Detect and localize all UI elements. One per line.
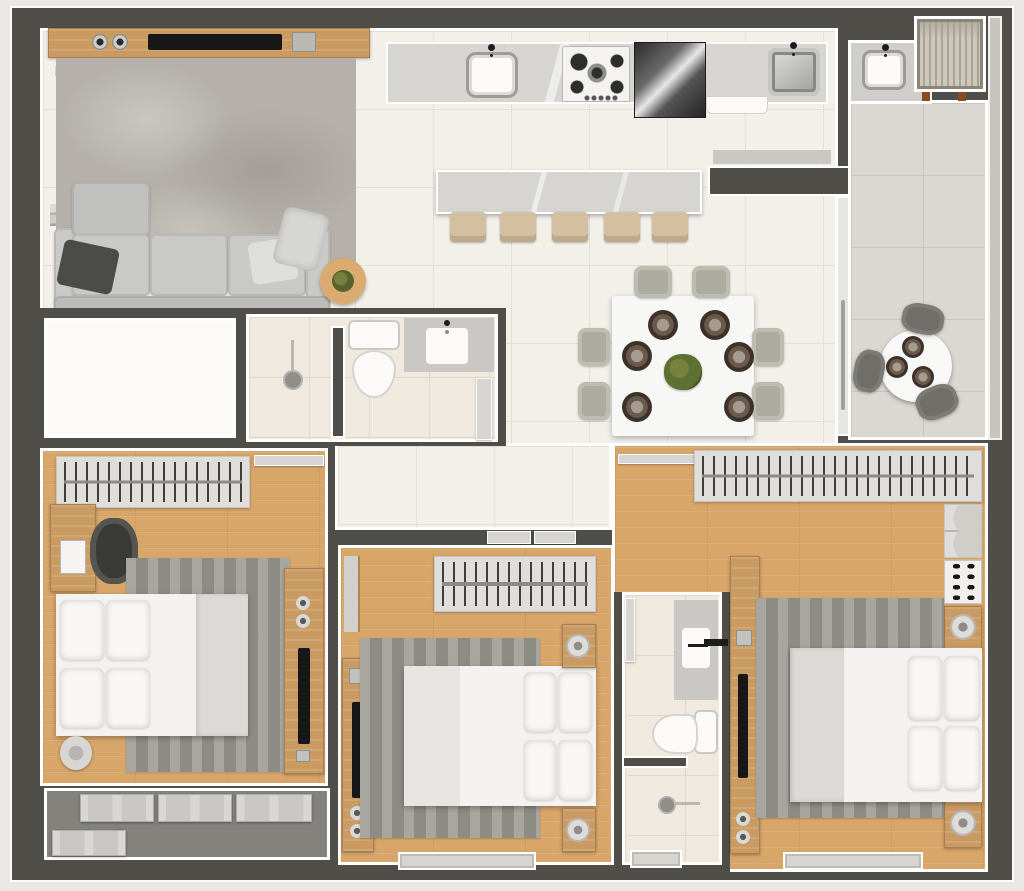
dining-chair [692,266,730,298]
dining-chair [752,328,784,366]
folded-sheet [404,666,460,806]
floor-plan [0,0,1024,891]
pillow [524,740,556,800]
pillow [944,726,980,790]
place-setting [724,392,754,422]
wall-spur [708,166,850,196]
shower-half-wall [331,326,345,438]
dining-chair [752,382,784,420]
vanity-sink [680,626,712,670]
ac-condenser [236,794,312,822]
knob-icon [296,596,310,610]
bedroom-door [618,454,696,464]
bar-stool [552,212,588,242]
folded-blanket [196,594,248,736]
bathroom-door [476,378,492,440]
shower-arm [291,340,294,374]
lamp-icon [566,634,590,658]
place-setting [622,392,652,422]
bedroom2-sliding-door [534,531,576,544]
pillow [60,668,104,728]
room-hallway [335,446,612,530]
light-switch-icon [296,750,310,762]
media-box [292,32,316,52]
hangers-icon [442,562,588,606]
place-setting [648,310,678,340]
hangers-icon [64,462,242,502]
centerpiece-plant [664,354,702,390]
bedroom-door [254,455,324,466]
shower-half-wall [622,756,688,768]
stainless-sink [768,48,820,96]
place-setting [700,310,730,340]
tv-flat [738,674,748,778]
faucet-icon [444,320,450,326]
faucet-icon [488,44,495,51]
shower-head-icon [283,370,303,390]
niche-foot [958,92,966,101]
dishwasher-front [706,96,768,114]
bar-stool [450,212,486,242]
bar-stool [652,212,688,242]
faucet-icon [790,42,797,49]
wall-shelf [344,556,358,632]
knob-icon [296,614,310,628]
lamp-icon [950,810,976,836]
shoe-shelf [944,560,982,604]
pillow [908,726,942,790]
place-setting [724,342,754,372]
window [630,850,682,868]
pillow [944,656,980,720]
dining-chair [634,266,672,298]
bar-stool [500,212,536,242]
bathroom-door [625,598,635,662]
lamp-icon [950,614,976,640]
tv-flat [148,34,282,50]
louvered-ac-niche [914,16,986,92]
window [398,852,536,870]
vanity-sink [424,326,470,366]
sliding-door-panel [712,149,832,165]
wardrobe [694,450,982,502]
faucet-icon [882,44,889,51]
balcony-glass-rail [988,16,1002,440]
drum-side-table [60,736,92,770]
laptop [60,540,86,574]
tv-flat [298,648,310,744]
lamp-icon [566,818,590,842]
pillow [60,600,104,660]
handle-icon [736,630,752,646]
wardrobe [56,456,250,508]
shower-arm [674,802,700,805]
faucet-icon [688,644,708,647]
niche-foot [922,92,930,101]
hangers-icon [702,456,974,496]
wardrobe [434,556,596,612]
sofa-seat [150,234,228,296]
shower-head-icon [658,796,676,814]
dining-chair [578,328,610,366]
utility-sink [862,50,906,90]
room-storage [44,318,236,438]
place-setting [886,356,908,378]
place-setting [912,366,934,388]
pillow [558,672,592,732]
pillow [908,656,942,720]
plant-icon [332,270,354,292]
pillow [558,740,592,800]
bar-stool [604,212,640,242]
gas-cooktop [562,46,630,102]
place-setting [622,341,652,371]
speaker-icon [112,34,128,50]
folded-blanket [790,648,844,802]
ac-condenser [158,794,232,822]
knob-icon [736,812,750,826]
ac-condenser [52,830,126,856]
door-handle-icon [841,300,845,410]
kitchen-sink [466,52,518,98]
dining-chair [578,382,610,420]
bedroom2-sliding-door [487,531,531,544]
kitchen-island [436,170,702,214]
sofa-chaise-back [72,182,150,236]
pillow [106,668,150,728]
ac-condenser [80,794,154,822]
place-setting [902,336,924,358]
refrigerator [634,42,706,118]
pillow [106,600,150,660]
toilet-bowl [652,714,698,754]
knob-icon [736,830,750,844]
speaker-icon [92,34,108,50]
window [783,852,923,870]
drawer-unit [944,504,982,558]
pillow [524,672,556,732]
toilet-tank [348,320,400,350]
